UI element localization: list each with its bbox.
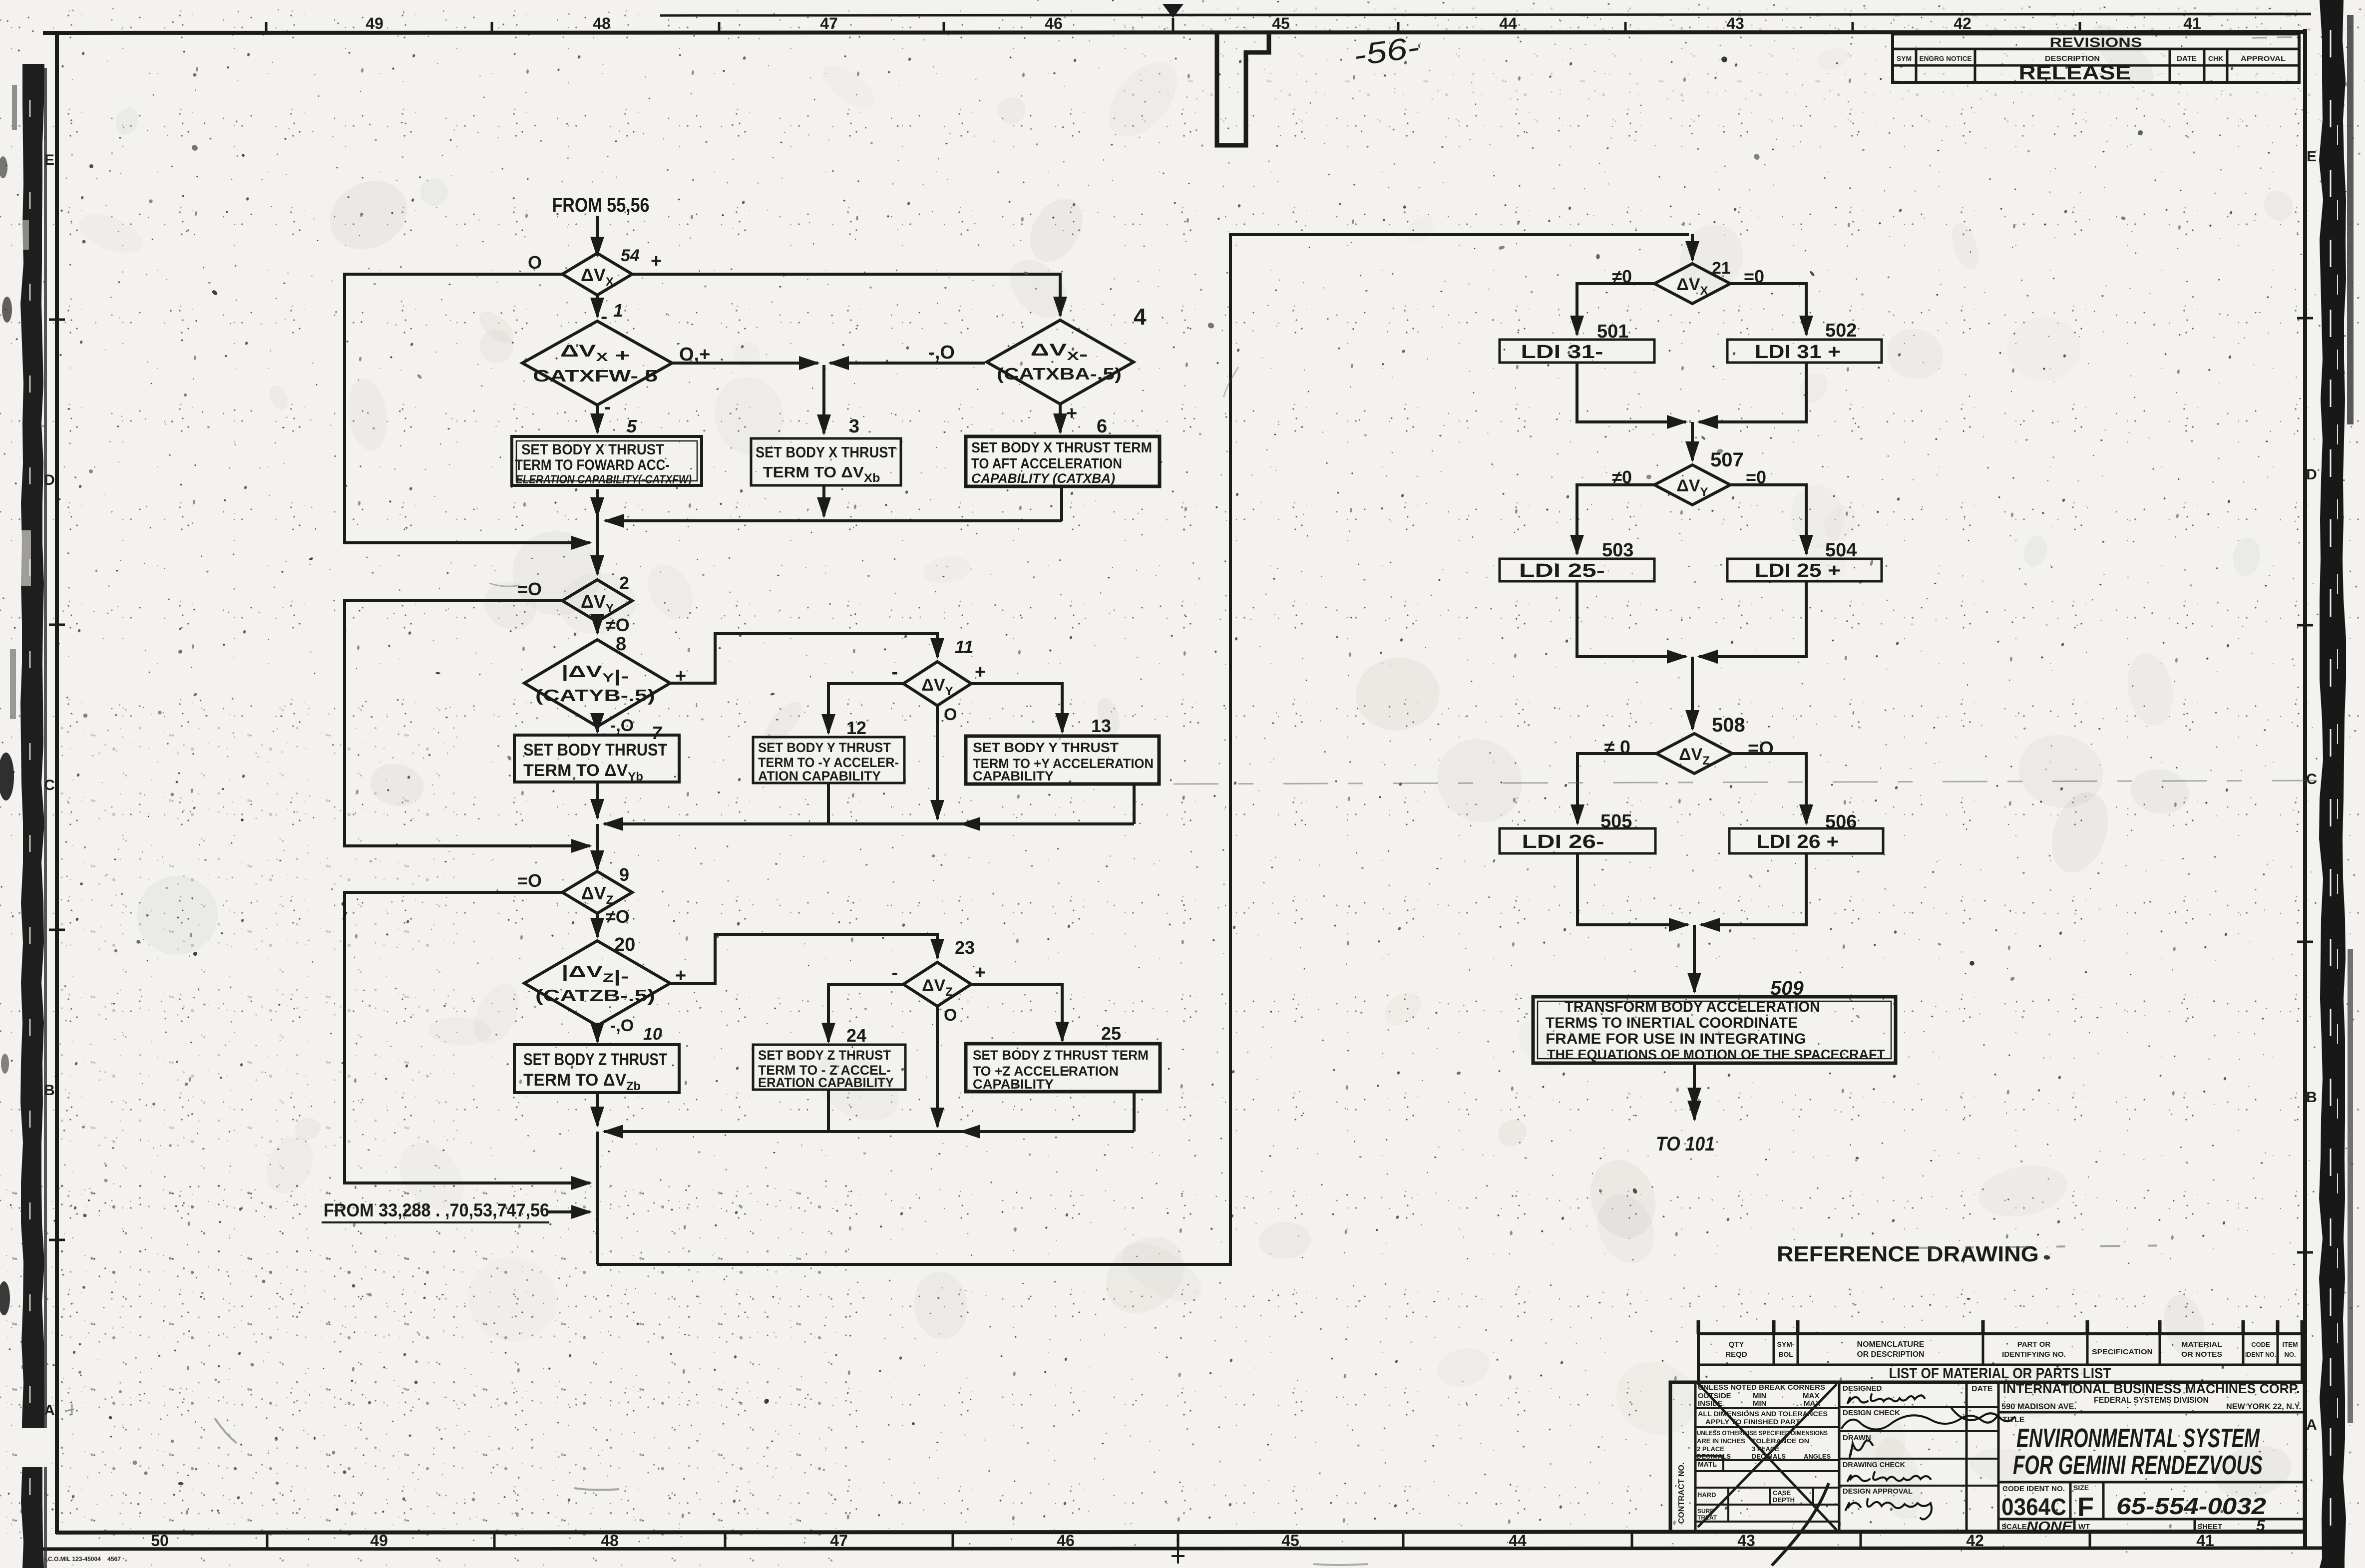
svg-text:F: F [2077,1492,2094,1522]
svg-text:FRAME FOR USE IN INTEGRATING: FRAME FOR USE IN INTEGRATING [1546,1031,1806,1047]
svg-text:ITEM: ITEM [2282,1341,2298,1348]
svg-text:DEPTH: DEPTH [1773,1496,1795,1504]
svg-text:23: 23 [955,937,975,958]
svg-text:46: 46 [1045,14,1063,32]
svg-text:41: 41 [2183,14,2201,32]
svg-text:9: 9 [619,864,629,885]
svg-text:+: + [651,251,662,272]
svg-text:TO AFT ACCELERATION: TO AFT ACCELERATION [971,456,1122,472]
svg-text:20: 20 [614,934,635,955]
svg-text:5: 5 [2256,1517,2266,1535]
svg-text:HARD: HARD [1697,1491,1716,1499]
svg-text:45: 45 [1272,14,1290,32]
svg-text:ALL DIMENSIONS AND TOLERANCES: ALL DIMENSIONS AND TOLERANCES [1698,1410,1828,1418]
svg-text:=O: =O [517,579,542,599]
svg-text:OR DESCRIPTION: OR DESCRIPTION [1857,1350,1925,1359]
svg-text:SET BODY Z THRUST: SET BODY Z THRUST [758,1048,891,1063]
svg-text:4: 4 [1134,304,1147,330]
svg-text:MAX: MAX [1804,1399,1820,1408]
svg-text:LDI 31 +: LDI 31 + [1755,342,1841,363]
svg-text:SYM-: SYM- [1777,1340,1795,1348]
svg-text:MIN: MIN [1753,1399,1767,1408]
svg-text:IDENT NO.: IDENT NO. [2245,1351,2276,1358]
svg-text:OR NOTES: OR NOTES [2181,1350,2222,1359]
svg-text:ELERATION CAPABILITY(-CATXFW): ELERATION CAPABILITY(-CATXFW) [516,473,692,486]
svg-text:IDENTIFYING NO.: IDENTIFYING NO. [2002,1350,2066,1359]
svg-text:43: 43 [1737,1532,1755,1550]
svg-text:50: 50 [151,1532,169,1550]
svg-text:-: - [891,962,898,983]
svg-text:B: B [2306,1089,2317,1106]
svg-text:3: 3 [849,416,859,437]
svg-text:FROM 33,288 . ,70,53,747,56: FROM 33,288 . ,70,53,747,56 [324,1200,549,1220]
svg-text:TO 101: TO 101 [1656,1133,1715,1155]
svg-text:CAPABILITY: CAPABILITY [973,1077,1054,1092]
svg-text:PART OR: PART OR [2017,1340,2051,1349]
svg-text:21: 21 [1712,259,1731,278]
svg-text:SYM: SYM [1897,54,1912,62]
svg-text:25: 25 [1101,1023,1121,1044]
svg-text:+: + [975,962,986,983]
svg-text:REVISIONS: REVISIONS [2050,35,2142,50]
svg-text:+: + [975,662,986,683]
svg-text:LDI 25 +: LDI 25 + [1755,560,1841,581]
svg-text:41: 41 [2196,1532,2214,1550]
svg-text:48: 48 [593,14,611,32]
svg-text:44: 44 [1509,1532,1527,1550]
svg-text:NOMENCLATURE: NOMENCLATURE [1857,1340,1925,1349]
svg-text:SET BODY X THRUST: SET BODY X THRUST [521,441,664,458]
svg-text:0364C: 0364C [2001,1494,2066,1521]
svg-text:2 PLACE: 2 PLACE [1697,1445,1724,1453]
svg-text:≠O: ≠O [606,906,630,927]
svg-text:ATION CAPABILITY: ATION CAPABILITY [758,769,881,784]
svg-text:APPROVAL: APPROVAL [2241,54,2286,62]
svg-text:TOLERANCE ON: TOLERANCE ON [1752,1437,1809,1445]
svg-text:LDI 31-: LDI 31- [1521,342,1603,363]
svg-text:NO.: NO. [2284,1351,2296,1358]
svg-text:TERM TO FOWARD ACC-: TERM TO FOWARD ACC- [515,457,670,473]
svg-text:LDI 26-: LDI 26- [1522,831,1604,852]
svg-text:ENVIRONMENTAL SYSTEM: ENVIRONMENTAL SYSTEM [2016,1423,2260,1453]
svg-text:TRANSFORM BODY ACCELERATION: TRANSFORM BODY ACCELERATION [1565,999,1820,1015]
svg-text:DECIMALS: DECIMALS [1752,1453,1786,1460]
svg-text:WT: WT [2078,1523,2090,1531]
svg-text:THE EQUATIONS OF MOTION OF THE: THE EQUATIONS OF MOTION OF THE SPACECRAF… [1547,1047,1885,1062]
svg-text:3 PLACE: 3 PLACE [1752,1445,1779,1453]
svg-text:ENGRG NOTICE: ENGRG NOTICE [1920,54,1972,62]
svg-text:-: - [891,662,898,683]
svg-text:=0: =0 [1746,467,1766,487]
svg-text:-,O: -,O [610,1016,634,1035]
svg-text:UNLESS OTHERWISE SPECIFIED DIM: UNLESS OTHERWISE SPECIFIED DIMENSIONS [1697,1430,1828,1437]
svg-text:SURF: SURF [1697,1508,1714,1515]
svg-text:DATE: DATE [2177,54,2197,63]
svg-text:CODE IDENT NO.: CODE IDENT NO. [2002,1485,2065,1493]
svg-text:-: - [601,306,607,328]
svg-text:CONTRACT NO.: CONTRACT NO. [1677,1463,1686,1524]
svg-text:SCALE: SCALE [2001,1523,2027,1531]
svg-text:SET BODY X THRUST: SET BODY X THRUST [756,443,896,461]
svg-text:O: O [944,1006,957,1025]
svg-text:LIST OF MATERIAL OR PARTS LIST: LIST OF MATERIAL OR PARTS LIST [1889,1365,2111,1382]
svg-text:-,O: -,O [610,716,634,735]
svg-text:NEW YORK 22, N.Y.: NEW YORK 22, N.Y. [2226,1402,2301,1411]
svg-text:C: C [2306,771,2317,787]
svg-text:≠0: ≠0 [1612,467,1632,487]
svg-text:SET BODY Z THRUST TERM: SET BODY Z THRUST TERM [973,1048,1149,1063]
svg-text:8: 8 [616,634,626,655]
svg-text:49: 49 [370,1532,388,1550]
svg-text:O: O [944,705,957,724]
svg-text:42: 42 [1966,1532,1984,1550]
svg-text:(CATXBA-.5): (CATXBA-.5) [997,365,1122,383]
svg-text:INSIDE: INSIDE [1698,1399,1723,1408]
svg-text:2: 2 [619,573,629,593]
svg-text:=O: =O [517,870,542,891]
svg-text:CHK: CHK [2208,54,2223,62]
svg-text:ARE IN INCHES: ARE IN INCHES [1697,1437,1745,1445]
svg-text:DECIMALS: DECIMALS [1697,1453,1731,1460]
svg-text:TREAT: TREAT [1697,1514,1717,1521]
svg-text:SET BODY X THRUST TERM: SET BODY X THRUST TERM [971,440,1152,456]
svg-text:10: 10 [643,1025,662,1044]
svg-text:=O: =O [1748,738,1774,759]
svg-text:NONE: NONE [2026,1519,2073,1534]
svg-text:DESIGN APPROVAL: DESIGN APPROVAL [1843,1487,1913,1496]
svg-text:(CATYB-.5): (CATYB-.5) [535,686,655,705]
svg-text:QTY: QTY [1729,1340,1744,1349]
svg-text:47: 47 [830,1532,848,1550]
svg-text:7: 7 [652,723,663,743]
svg-text:DRAWING CHECK: DRAWING CHECK [1843,1461,1905,1469]
svg-text:49: 49 [366,14,384,32]
svg-text:O,+: O,+ [679,344,710,365]
svg-text:MATL: MATL [1698,1460,1717,1468]
svg-text:-,O: -,O [928,342,955,363]
svg-text:DESIGN CHECK: DESIGN CHECK [1843,1409,1900,1417]
svg-text:DATE: DATE [1971,1385,1993,1393]
svg-text:+: + [675,965,686,986]
svg-text:UNLESS NOTED BREAK CORNERS: UNLESS NOTED BREAK CORNERS [1698,1383,1825,1392]
svg-text:=0: =0 [1744,266,1764,287]
svg-text:CATXFW-.5: CATXFW-.5 [533,367,658,385]
svg-text:46: 46 [1057,1532,1075,1550]
svg-text:13: 13 [1091,716,1111,736]
svg-text:FROM 55,56: FROM 55,56 [552,194,650,216]
svg-text:5: 5 [627,416,637,436]
svg-text:501: 501 [1597,321,1628,342]
svg-text:11: 11 [955,637,973,657]
svg-text:≠ 0: ≠ 0 [1604,737,1630,758]
svg-text:43: 43 [1726,14,1744,32]
svg-text:TERMS TO INERTIAL COORDINATE: TERMS TO INERTIAL COORDINATE [1546,1015,1798,1031]
svg-text:CODE: CODE [2251,1341,2270,1348]
svg-text:CAPABILITY (CATXBA): CAPABILITY (CATXBA) [971,471,1115,486]
svg-text:45: 45 [1281,1532,1299,1550]
svg-text:≠O: ≠O [606,615,630,635]
svg-text:SET BODY Y THRUST: SET BODY Y THRUST [973,740,1119,755]
svg-text:507: 507 [1710,449,1744,471]
svg-text:SET BODY Z THRUST: SET BODY Z THRUST [523,1050,667,1069]
svg-text:E: E [2307,148,2317,165]
svg-text:SIZE: SIZE [2073,1484,2089,1492]
svg-text:FOR GEMINI RENDEZVOUS: FOR GEMINI RENDEZVOUS [2013,1450,2263,1480]
svg-text:A: A [2306,1417,2317,1433]
svg-text:SPECIFICATION: SPECIFICATION [2092,1348,2153,1356]
svg-text:FEDERAL SYSTEMS DIVISION: FEDERAL SYSTEMS DIVISION [2094,1395,2209,1405]
svg-text:ERATION CAPABILITY: ERATION CAPABILITY [758,1075,894,1090]
svg-text:SET BODY Y THRUST: SET BODY Y THRUST [758,740,891,755]
svg-text:(CATZB-.5): (CATZB-.5) [535,986,655,1005]
svg-text:C.O.MIL 123-45004 4567: C.O.MIL 123-45004 4567 [48,1556,121,1563]
svg-text:ANGLES: ANGLES [1804,1453,1831,1460]
svg-text:RELEASE: RELEASE [2019,62,2131,84]
svg-text:LDI 25-: LDI 25- [1519,560,1605,581]
svg-text:SHEET: SHEET [2197,1523,2222,1531]
svg-text:24: 24 [846,1025,866,1046]
svg-text:LDI 26 +: LDI 26 + [1757,831,1839,852]
svg-text:SET BODY THRUST: SET BODY THRUST [523,741,667,760]
svg-text:590 MADISON AVE.: 590 MADISON AVE. [2001,1402,2076,1411]
svg-text:BOL: BOL [1778,1350,1793,1358]
svg-text:44: 44 [1499,14,1517,32]
svg-text:1: 1 [613,300,623,321]
svg-text:+: + [675,666,686,687]
svg-text:CASE: CASE [1773,1489,1791,1497]
svg-text:REFERENCE DRAWING: REFERENCE DRAWING [1777,1242,2039,1266]
svg-text:O: O [528,252,542,273]
svg-text:TERM TO -Y ACCELER-: TERM TO -Y ACCELER- [758,755,899,770]
svg-text:CAPABILITY: CAPABILITY [973,769,1054,784]
svg-text:506: 506 [1825,811,1857,832]
svg-text:48: 48 [601,1532,619,1550]
svg-text:DESIGNED: DESIGNED [1843,1384,1882,1393]
svg-text:≠0: ≠0 [1612,266,1632,287]
svg-text:6: 6 [1097,416,1107,437]
svg-text:D: D [2306,466,2317,483]
svg-text:+: + [1066,403,1077,424]
svg-text:REQD: REQD [1725,1350,1747,1359]
svg-text:APPLY TO FINISHED PART: APPLY TO FINISHED PART [1705,1418,1800,1426]
svg-text:503: 503 [1602,540,1633,561]
svg-text:65-554-0032: 65-554-0032 [2116,1493,2266,1519]
svg-text:MATERIAL: MATERIAL [2181,1340,2222,1349]
svg-text:509: 509 [1770,977,1804,999]
svg-text:502: 502 [1825,320,1857,341]
svg-text:12: 12 [846,718,866,738]
svg-text:-: - [604,396,611,418]
svg-text:INTERNATIONAL BUSINESS MACHI: INTERNATIONAL BUSINESS MACHINES CORP. [2003,1381,2300,1396]
svg-text:508: 508 [1712,714,1745,736]
svg-text:54: 54 [621,246,640,265]
svg-text:504: 504 [1825,540,1857,561]
svg-text:47: 47 [820,14,838,32]
svg-text:42: 42 [1954,14,1971,32]
svg-text:505: 505 [1600,811,1632,832]
